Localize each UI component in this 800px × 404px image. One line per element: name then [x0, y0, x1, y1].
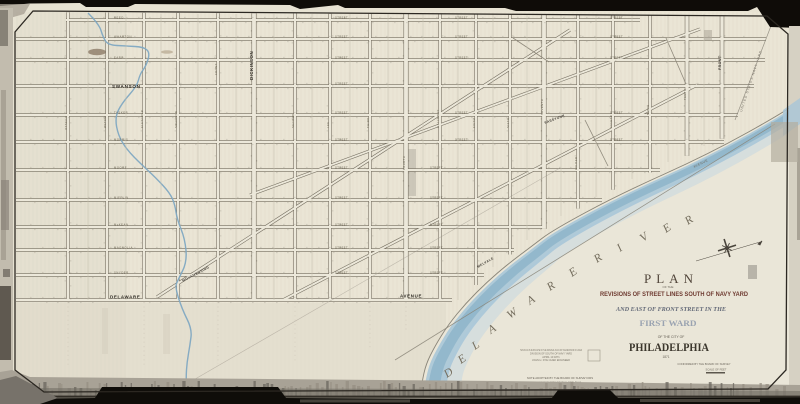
svg-text:STREET: STREET	[335, 16, 348, 20]
svg-text:STREET: STREET	[610, 56, 623, 60]
svg-text:FRONT: FRONT	[718, 55, 722, 70]
svg-text:THIRD: THIRD	[366, 117, 370, 128]
svg-text:NINTH: NINTH	[646, 104, 650, 115]
svg-text:PHILADELPHIA: PHILADELPHIA	[629, 342, 710, 354]
svg-text:STREET: STREET	[335, 246, 348, 250]
svg-text:GALLOWAY: GALLOWAY	[436, 109, 440, 128]
svg-text:STREET: STREET	[335, 82, 348, 86]
svg-text:WILDER: WILDER	[574, 157, 578, 170]
svg-text:MAGNOLIA: MAGNOLIA	[114, 246, 133, 250]
svg-text:EARP: EARP	[114, 56, 124, 60]
svg-text:STREET: STREET	[430, 246, 443, 250]
svg-text:FOURTH: FOURTH	[402, 156, 406, 170]
svg-text:MIFFLIN: MIFFLIN	[114, 196, 129, 200]
svg-text:APRIL 10 1871: APRIL 10 1871	[542, 355, 560, 359]
svg-text:LEE: LEE	[326, 121, 330, 128]
svg-text:REED: REED	[114, 16, 124, 20]
svg-text:STREET: STREET	[455, 56, 468, 60]
svg-text:STREET: STREET	[335, 223, 348, 227]
svg-text:MOORE: MOORE	[114, 166, 127, 170]
svg-text:DELAWARE: DELAWARE	[110, 295, 140, 300]
svg-text:STREET: STREET	[335, 166, 348, 170]
svg-text:CONFIRMED BY THE BOARD OF SURV: CONFIRMED BY THE BOARD OF SURVEY	[677, 362, 730, 366]
svg-text:EIGHTH: EIGHTH	[609, 115, 613, 128]
svg-text:SNYDER: SNYDER	[114, 271, 129, 275]
svg-text:STREET: STREET	[335, 138, 348, 142]
svg-text:STREET: STREET	[610, 138, 623, 142]
svg-text:STREET: STREET	[335, 196, 348, 200]
svg-text:FIRST WARD: FIRST WARD	[640, 318, 697, 328]
svg-text:OF THE CITY OF: OF THE CITY OF	[658, 335, 685, 339]
svg-text:SWANSON: SWANSON	[112, 84, 141, 89]
svg-text:McKEAN: McKEAN	[114, 223, 129, 227]
svg-text:SEVENTH: SEVENTH	[540, 99, 544, 115]
svg-text:STREET: STREET	[430, 166, 443, 170]
svg-text:STREET: STREET	[610, 16, 623, 20]
svg-text:PLAN: PLAN	[644, 271, 698, 286]
svg-text:STREET: STREET	[430, 223, 443, 227]
svg-text:SCALE OF FEET: SCALE OF FEET	[706, 368, 727, 372]
svg-text:STREET: STREET	[335, 35, 348, 39]
svg-text:FLETCHER: FLETCHER	[140, 110, 144, 128]
svg-text:SWANSON: SWANSON	[174, 111, 178, 128]
svg-text:STREET: STREET	[335, 111, 348, 115]
svg-text:FRONT: FRONT	[214, 63, 218, 75]
svg-text:FIFTH: FIFTH	[472, 118, 476, 128]
svg-text:STREET: STREET	[455, 35, 468, 39]
svg-text:REVISIONS OF STREET LINES SOUT: REVISIONS OF STREET LINES SOUTH OF NAVY …	[600, 292, 749, 298]
svg-text:STREET: STREET	[430, 196, 443, 200]
svg-text:DICKINSON: DICKINSON	[249, 51, 254, 80]
svg-text:STREET: STREET	[610, 111, 623, 115]
svg-text:STREET: STREET	[455, 16, 468, 20]
svg-text:STREET: STREET	[430, 271, 443, 275]
svg-text:DIVISION OF SOUTH OF NAVY YARD: DIVISION OF SOUTH OF NAVY YARD	[530, 351, 572, 355]
svg-text:SECOND: SECOND	[291, 114, 295, 129]
svg-text:WATER: WATER	[103, 116, 107, 128]
svg-text:STREET: STREET	[455, 138, 468, 142]
svg-text:OF THE: OF THE	[663, 285, 674, 289]
svg-text:AND EAST OF FRONT STREET IN TH: AND EAST OF FRONT STREET IN THE	[615, 306, 726, 313]
svg-text:NOTE ADOPTED BY THE BOARD OF: NOTE ADOPTED BY THE BOARD OF SURVEYORS	[527, 376, 593, 380]
svg-text:SIXTH: SIXTH	[506, 118, 510, 128]
svg-text:STREET: STREET	[335, 271, 348, 275]
svg-text:TASKER: TASKER	[114, 111, 128, 115]
svg-text:STREET: STREET	[335, 56, 348, 60]
svg-text:AVENUE: AVENUE	[400, 294, 422, 299]
svg-text:WHARTON: WHARTON	[114, 35, 132, 39]
svg-text:1871: 1871	[662, 355, 669, 359]
svg-text:MORRIS: MORRIS	[114, 138, 128, 142]
svg-text:TENTH: TENTH	[683, 89, 687, 100]
svg-text:STREET: STREET	[610, 35, 623, 39]
svg-text:STREET: STREET	[455, 111, 468, 115]
svg-text:THIS PLAN IS DUPLICATE OF THE: THIS PLAN IS DUPLICATE OF THE ORIGINAL P…	[520, 348, 582, 352]
svg-text:JOHN H. DYE CHIEF ENGINEER: JOHN H. DYE CHIEF ENGINEER	[532, 358, 570, 362]
svg-text:OTSEGO: OTSEGO	[64, 116, 68, 131]
